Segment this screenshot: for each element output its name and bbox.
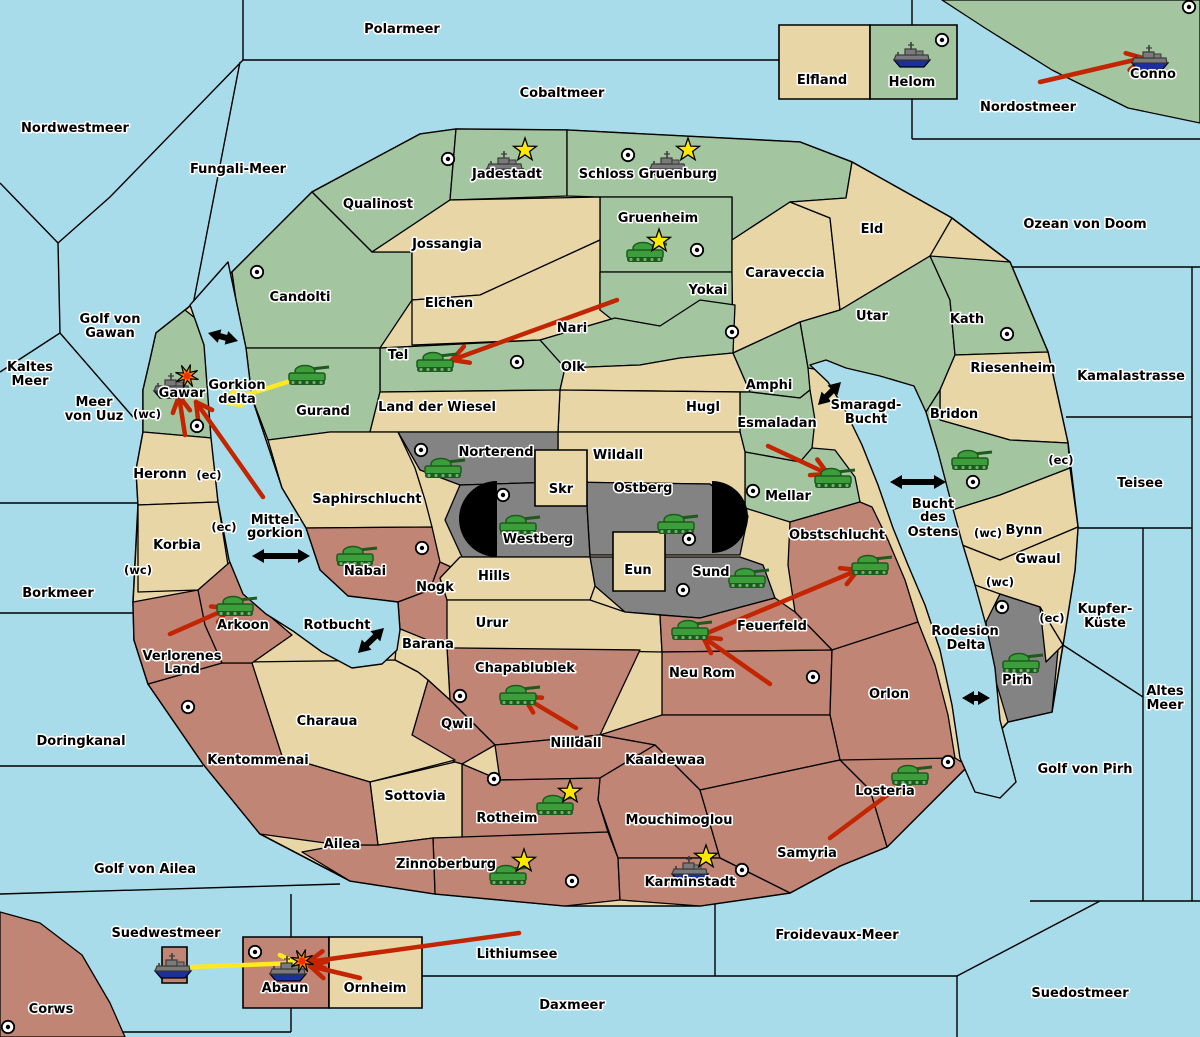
territory-label-zinnoberburg: Zinnoberburg (396, 857, 496, 872)
territory-label-ostberg: Ostberg (614, 481, 673, 496)
supply-center-dot (2, 1021, 14, 1033)
territory-label-hugl: Hugl (686, 400, 720, 415)
territory-label-kaaldewaa: Kaaldewaa (625, 753, 705, 768)
sea-label-fungali-meer: Fungali-Meer (190, 162, 287, 177)
sea-label-gawan: Gawan (85, 326, 134, 341)
supply-center-dot (936, 34, 948, 46)
territory-label-schloss-gruenburg: Schloss Gruenburg (579, 167, 717, 182)
sea-label-suedwestmeer: Suedwestmeer (111, 926, 221, 941)
sea-label-altes: Altes (1146, 684, 1184, 699)
territory-label-elchen: Elchen (425, 296, 473, 311)
territory-label-caraveccia: Caraveccia (745, 266, 824, 281)
coast-label--ec-: (ec) (1048, 453, 1073, 467)
territory-gruenheim[interactable] (600, 197, 732, 272)
territory-label-skr: Skr (549, 482, 574, 497)
sea-label-golf-von-pirh: Golf von Pirh (1037, 762, 1132, 777)
sea-label-golf-von-ailea: Golf von Ailea (94, 862, 196, 877)
territory-label-abaun: Abaun (262, 981, 309, 996)
territory-skr[interactable] (535, 450, 587, 506)
sea-label-lithiumsee: Lithiumsee (477, 947, 558, 962)
territory-neu-rom[interactable] (662, 650, 832, 715)
supply-center-dot (807, 671, 819, 683)
territory-label-eun: Eun (624, 563, 651, 578)
sea-label-suedostmeer: Suedostmeer (1031, 986, 1129, 1001)
territory-label-mouchimoglou: Mouchimoglou (626, 813, 733, 828)
territory-gurand[interactable] (246, 348, 380, 440)
sea-label-froidevaux-meer: Froidevaux-Meer (775, 928, 899, 943)
supply-center-dot (566, 875, 578, 887)
coast-label--wc-: (wc) (133, 407, 161, 421)
territory-label-korbia: Korbia (153, 538, 201, 553)
territory-label-rotheim: Rotheim (476, 811, 537, 826)
supply-center-dot (1001, 328, 1013, 340)
sea-label-teisee: Teisee (1117, 476, 1163, 491)
supply-center-dot (249, 946, 261, 958)
territory-label-samyria: Samyria (777, 846, 837, 861)
game-map: PolarmeerNordwestmeerCobaltmeerFungali-M… (0, 0, 1200, 1037)
territory-label-arkoon: Arkoon (217, 618, 269, 633)
supply-center-dot (488, 773, 500, 785)
sea-label-kaltes: Kaltes (7, 360, 53, 375)
sea-label-delta: delta (218, 392, 256, 407)
territory-label-chapablublek: Chapablublek (475, 661, 575, 676)
territory-label-qwil: Qwil (441, 717, 473, 732)
territory-label-heronn: Heronn (133, 467, 187, 482)
territory-label-sottovia: Sottovia (384, 789, 445, 804)
territory-label-gurand: Gurand (296, 404, 350, 419)
territory-label-charaua: Charaua (297, 714, 358, 729)
sea-label-nordostmeer: Nordostmeer (980, 100, 1077, 115)
territory-label-wildall: Wildall (593, 448, 643, 463)
sea-label-smaragd-: Smaragd- (831, 398, 902, 413)
territory-label-land: Land (164, 662, 200, 677)
territory-label-utar: Utar (856, 309, 889, 324)
territory-label-nabai: Nabai (344, 564, 386, 579)
supply-center-dot (415, 444, 427, 456)
territory-label-corws: Corws (29, 1002, 74, 1017)
supply-center-dot (622, 149, 634, 161)
supply-center-dot (251, 266, 263, 278)
sea-label-ostens: Ostens (908, 525, 959, 540)
territory-label-gawar: Gawar (159, 386, 206, 401)
sea-label-k-ste: Küste (1084, 616, 1126, 631)
territory-hills[interactable] (440, 557, 595, 600)
sea-label-cobaltmeer: Cobaltmeer (520, 86, 605, 101)
supply-center-dot (454, 690, 466, 702)
territory-label-conno: Conno (1130, 67, 1176, 82)
coast-label--wc-: (wc) (124, 563, 152, 577)
territory-label-saphirschlucht: Saphirschlucht (312, 492, 421, 507)
sea-label-kupfer-: Kupfer- (1078, 602, 1133, 617)
territory-label-gwaul: Gwaul (1015, 552, 1060, 567)
sea-label-meer: Meer (76, 395, 114, 410)
sea-label-des: des (920, 510, 946, 525)
territory-label-mellar: Mellar (765, 489, 811, 504)
territory-label-losteria: Losteria (855, 784, 915, 799)
territory-label-nilldall: Nilldall (550, 736, 601, 751)
sea-label-von-uuz: von Uuz (65, 409, 124, 424)
territory-label-esmaladan: Esmaladan (737, 416, 817, 431)
coast-label--ec-: (ec) (211, 520, 236, 534)
supply-center-dot (497, 489, 509, 501)
territory-label-pirh: Pirh (1002, 673, 1032, 688)
battle-explosion-core (299, 958, 306, 965)
territory-label-bynn: Bynn (1006, 523, 1043, 538)
territory-label-candolti: Candolti (270, 290, 331, 305)
sea-label-gorkion: gorkion (247, 526, 303, 541)
supply-center-dot (677, 584, 689, 596)
territory-label-norterend: Norterend (458, 445, 533, 460)
sea-label-borkmeer: Borkmeer (22, 586, 94, 601)
territory-label-ornheim: Ornheim (344, 981, 407, 996)
sea-label-meer: Meer (1147, 698, 1185, 713)
territory-label-yokai: Yokai (687, 283, 727, 298)
territory-label-barana: Barana (402, 637, 454, 652)
sea-label-gorkion: Gorkion (208, 378, 265, 393)
territory-label-jadestadt: Jadestadt (471, 167, 542, 182)
sea-label-daxmeer: Daxmeer (539, 998, 605, 1013)
territory-label-gruenheim: Gruenheim (618, 211, 698, 226)
territory-eun[interactable] (613, 532, 665, 591)
territory-label-olk: Olk (561, 360, 586, 375)
sea-label-polarmeer: Polarmeer (364, 22, 440, 37)
sea-label-golf-von: Golf von (80, 312, 141, 327)
territory-label-land-der-wiesel: Land der Wiesel (378, 400, 496, 415)
sea-label-delta: Delta (946, 638, 985, 653)
sea-label-meer: Meer (12, 374, 50, 389)
supply-center-dot (736, 864, 748, 876)
territory-label-riesenheim: Riesenheim (970, 361, 1055, 376)
territory-label-hills: Hills (478, 569, 510, 584)
territory-label-sund: Sund (692, 565, 729, 580)
sea-label-doringkanal: Doringkanal (36, 734, 125, 749)
territory-label-obstschlucht: Obstschlucht (789, 528, 885, 543)
territory-label-neu-rom: Neu Rom (669, 666, 735, 681)
territory-label-eld: Eld (861, 222, 884, 237)
territory-label-amphi: Amphi (746, 378, 793, 393)
territory-label-kath: Kath (950, 312, 984, 327)
supply-center-dot (726, 326, 738, 338)
territory-label-jossangia: Jossangia (411, 237, 482, 252)
supply-center-dot (511, 356, 523, 368)
coast-label--ec-: (ec) (196, 468, 221, 482)
sea-label-kamalastrasse: Kamalastrasse (1077, 369, 1185, 384)
supply-center-dot (747, 485, 759, 497)
territory-label-orlon: Orlon (869, 687, 909, 702)
territory-label-qualinost: Qualinost (343, 197, 413, 212)
sea-label-rotbucht: Rotbucht (304, 618, 371, 633)
coast-label--wc-: (wc) (986, 575, 1014, 589)
battle-explosion-core (184, 373, 191, 380)
sea-label-nordwestmeer: Nordwestmeer (21, 121, 129, 136)
territory-label-tel: Tel (388, 348, 408, 363)
supply-center-dot (182, 701, 194, 713)
supply-center-dot (1183, 1, 1195, 13)
coast-label--ec-: (ec) (1039, 611, 1064, 625)
supply-center-dot (442, 153, 454, 165)
territory-label-ailea: Ailea (324, 837, 361, 852)
map-svg: PolarmeerNordwestmeerCobaltmeerFungali-M… (0, 0, 1200, 1037)
sea-label-rodesion: Rodesion (931, 624, 998, 639)
supply-center-dot (683, 533, 695, 545)
territory-label-westberg: Westberg (503, 532, 573, 547)
territory-label-urur: Urur (476, 616, 509, 631)
territory-label-karminstadt: Karminstadt (645, 875, 736, 890)
territory-label-feuerfeld: Feuerfeld (737, 619, 807, 634)
sea-label-ozean-von-doom: Ozean von Doom (1023, 217, 1146, 232)
supply-center-dot (967, 476, 979, 488)
territory-label-bridon: Bridon (930, 407, 978, 422)
territory-label-nogk: Nogk (416, 580, 454, 595)
supply-center-dot (942, 756, 954, 768)
territory-label-helom: Helom (889, 75, 936, 90)
territory-label-elfland: Elfland (797, 73, 847, 88)
sea-label-bucht: Bucht (845, 412, 887, 427)
territory-label-kentommenai: Kentommenai (207, 753, 308, 768)
supply-center-dot (996, 601, 1008, 613)
supply-center-dot (416, 542, 428, 554)
supply-center-dot (691, 244, 703, 256)
coast-label--wc-: (wc) (974, 526, 1002, 540)
supply-center-dot (191, 420, 203, 432)
territory-label-nari: Nari (557, 321, 588, 336)
